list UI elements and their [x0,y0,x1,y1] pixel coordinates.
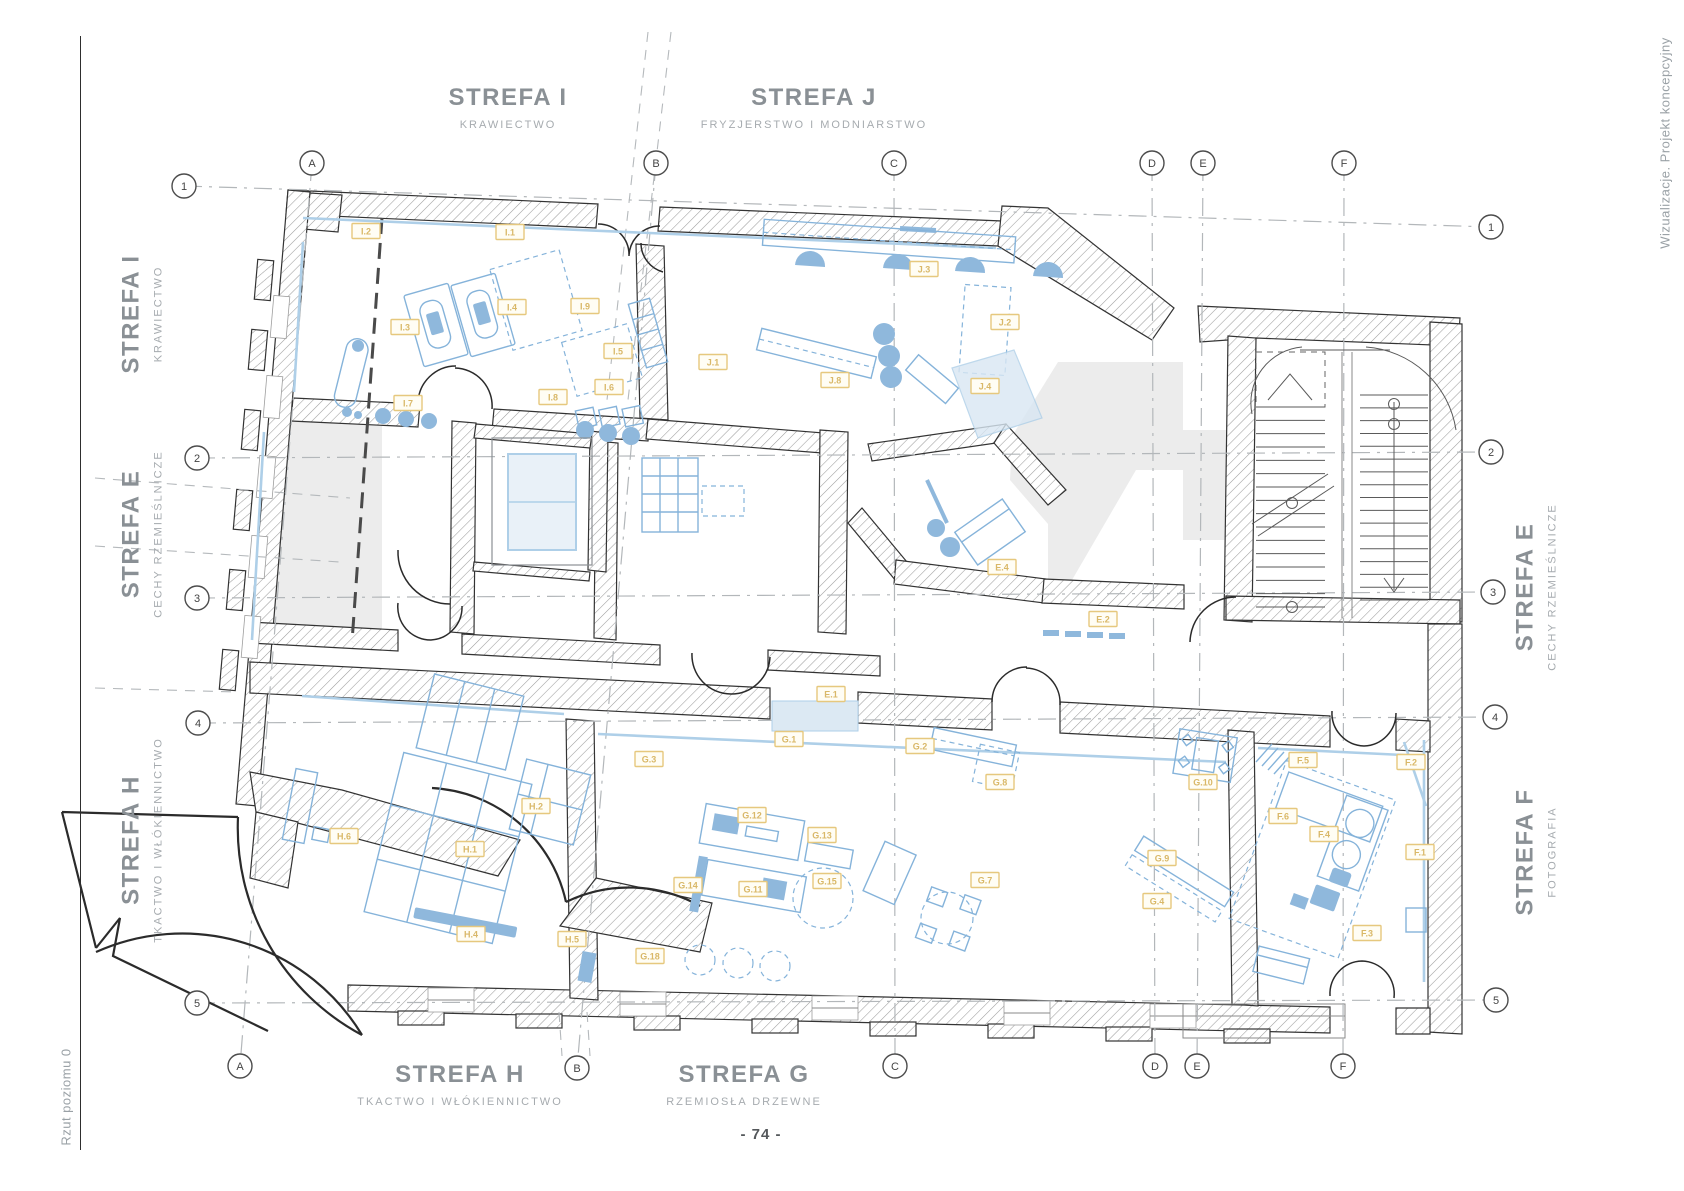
zone-label-bottom-strefa-h: STREFA H TKACTWO I WŁÓKIENNICTWO [357,1061,563,1108]
room-tag-label: G.12 [742,811,762,821]
grid-bubble-label: B [652,158,659,170]
room-tag-label: F.1 [1414,848,1426,858]
room-tag-label: I.1 [505,228,515,238]
grid-axis-line [894,163,895,1066]
room-tag-label: F.4 [1318,830,1330,840]
room-tag-label: I.7 [403,399,413,409]
drawing-title-note: Rzut poziomu 0 [59,1048,74,1145]
grid-bubble-label: E [1199,158,1206,170]
room-tag-label: G.13 [812,831,832,841]
sewing-tables [404,273,516,367]
grid-bubble-label: 5 [1493,995,1499,1007]
zone-subtitle: KRAWIECTWO [448,119,567,131]
room-tag-label: I.6 [604,383,614,393]
zone-title: STREFA G [666,1061,822,1089]
grid-bubble-label: 3 [1490,587,1496,599]
room-tag-label: G.14 [678,881,698,891]
room-tag-label: H.5 [565,935,579,945]
room-tag-label: G.1 [782,735,797,745]
margin-rule [80,36,81,1150]
zone-label-top-strefa-j: STREFA J FRYZJERSTWO I MODNIARSTWO [701,84,927,131]
grid-bubble-label: C [891,1061,899,1073]
room-tag-label: J.8 [829,376,842,386]
room-tag-label: G.15 [817,877,837,887]
room-tag-label: H.2 [529,802,543,812]
room-tag-label: E.1 [824,690,838,700]
grid-bubble-label: F [1341,158,1348,170]
zone-title: STREFA H [118,737,146,943]
room-tag-label: G.2 [913,742,928,752]
zone-title: STREFA I [448,84,567,112]
zone-label-bottom-strefa-g: STREFA G RZEMIOSŁA DRZEWNE [666,1061,822,1108]
room-tag-label: G.4 [1150,897,1165,907]
grid-bubble-label: 2 [194,453,200,465]
page-number: - 74 - [740,1126,781,1143]
grid-bubble-label: 1 [1488,222,1494,234]
room-tag-label: G.18 [640,952,660,962]
zone-title: STREFA H [357,1061,563,1089]
zone-label-left-strefa-e: STREFA E CECHY RZEMIEŚLNICZE [118,450,165,617]
grid-bubble-label: A [236,1061,244,1073]
room-tag-label: G.3 [642,755,657,765]
room-tag-label: G.11 [743,885,762,895]
page: { "page": { "number": "- 74 -", "left_no… [0,0,1684,1191]
zone-subtitle: KRAWIECTWO [153,254,165,373]
reception-counter-j [757,328,877,378]
room-tag-label: J.3 [918,265,931,275]
sheet-note: Wizualizacje. Projekt koncepcyjny [1658,37,1673,249]
room-tag-label: I.8 [548,393,558,403]
zone-subtitle: CECHY RZEMIEŚLNICZE [153,450,165,617]
grid-bubble-label: E [1193,1061,1200,1073]
zone-subtitle: CECHY RZEMIEŚLNICZE [1547,503,1559,670]
room-tag-label: J.1 [707,358,720,368]
room-tag-label: G.9 [1155,854,1170,864]
zone-label-top-strefa-i: STREFA I KRAWIECTWO [448,84,567,131]
zone-title: STREFA E [1512,503,1540,670]
room-tag-label: H.1 [463,845,477,855]
room-tag-label: E.2 [1096,615,1110,625]
darkroom-sinks [1317,795,1388,892]
zone-title: STREFA E [118,450,146,617]
room-tag-label: G.10 [1193,778,1213,788]
shelving-unit [642,458,698,532]
grid-bubble-label: C [890,158,898,170]
walls-layer [219,190,1462,1043]
zone-label-left-strefa-h: STREFA H TKACTWO I WŁÓKIENNICTWO [118,737,165,943]
zone-title: STREFA I [118,254,146,373]
room-tag-label: H.6 [337,832,351,842]
grid-bubble-label: 3 [194,593,200,605]
grid-bubble-label: 4 [195,718,201,730]
zone-title: STREFA J [701,84,927,112]
room-tag-label: I.9 [580,302,590,312]
grid-bubble-label: D [1148,158,1156,170]
room-tag-label: I.5 [613,347,623,357]
zone-label-right-strefa-e: STREFA E CECHY RZEMIEŚLNICZE [1512,503,1559,670]
room-tag-label: I.2 [361,227,371,237]
grid-bubble-label: D [1151,1061,1159,1073]
room-tag-label: J.2 [999,318,1012,328]
grid-bubble-label: 5 [194,998,200,1010]
zone-label-right-strefa-f: STREFA F FOTOGRAFIA [1512,788,1559,915]
room-tag-label: F.3 [1361,929,1373,939]
grid-bubble-label: F [1340,1061,1347,1073]
zone-title: STREFA F [1512,788,1540,915]
room-tag-label: F.6 [1277,812,1289,822]
room-tag-label: I.3 [400,323,410,333]
room-tag-label: E.4 [995,563,1009,573]
room-tag-label: I.4 [507,303,517,313]
grid-bubble-label: B [573,1063,580,1075]
zone-subtitle: FRYZJERSTWO I MODNIARSTWO [701,119,927,131]
room-tag-label: G.8 [993,778,1008,788]
zone-subtitle: TKACTWO I WŁÓKIENNICTWO [153,737,165,943]
room-tag-label: G.7 [978,876,993,886]
floor-plan-canvas: I.1I.2I.3I.4I.9I.5I.6I.7I.8J.1J.3J.8J.4J… [0,0,1684,1191]
room-tag-label: J.4 [979,382,992,392]
room-tag-label: H.4 [464,930,478,940]
grid-bubble-label: 2 [1488,447,1494,459]
grid-bubble-label: 4 [1492,712,1498,724]
zone-subtitle: FOTOGRAFIA [1547,788,1559,915]
elevator [492,438,592,565]
room-tag-label: F.5 [1297,756,1309,766]
zone-subtitle: TKACTWO I WŁÓKIENNICTWO [357,1096,563,1108]
zone-subtitle: RZEMIOSŁA DRZEWNE [666,1096,822,1108]
grid-bubble-label: A [308,158,316,170]
reception-desk [955,499,1025,565]
staircases [1251,347,1456,618]
room-tag-label: F.2 [1405,758,1417,768]
ironing-board [332,336,370,409]
zone-label-left-strefa-i: STREFA I KRAWIECTWO [118,254,165,373]
grid-bubble-label: 1 [181,181,187,193]
